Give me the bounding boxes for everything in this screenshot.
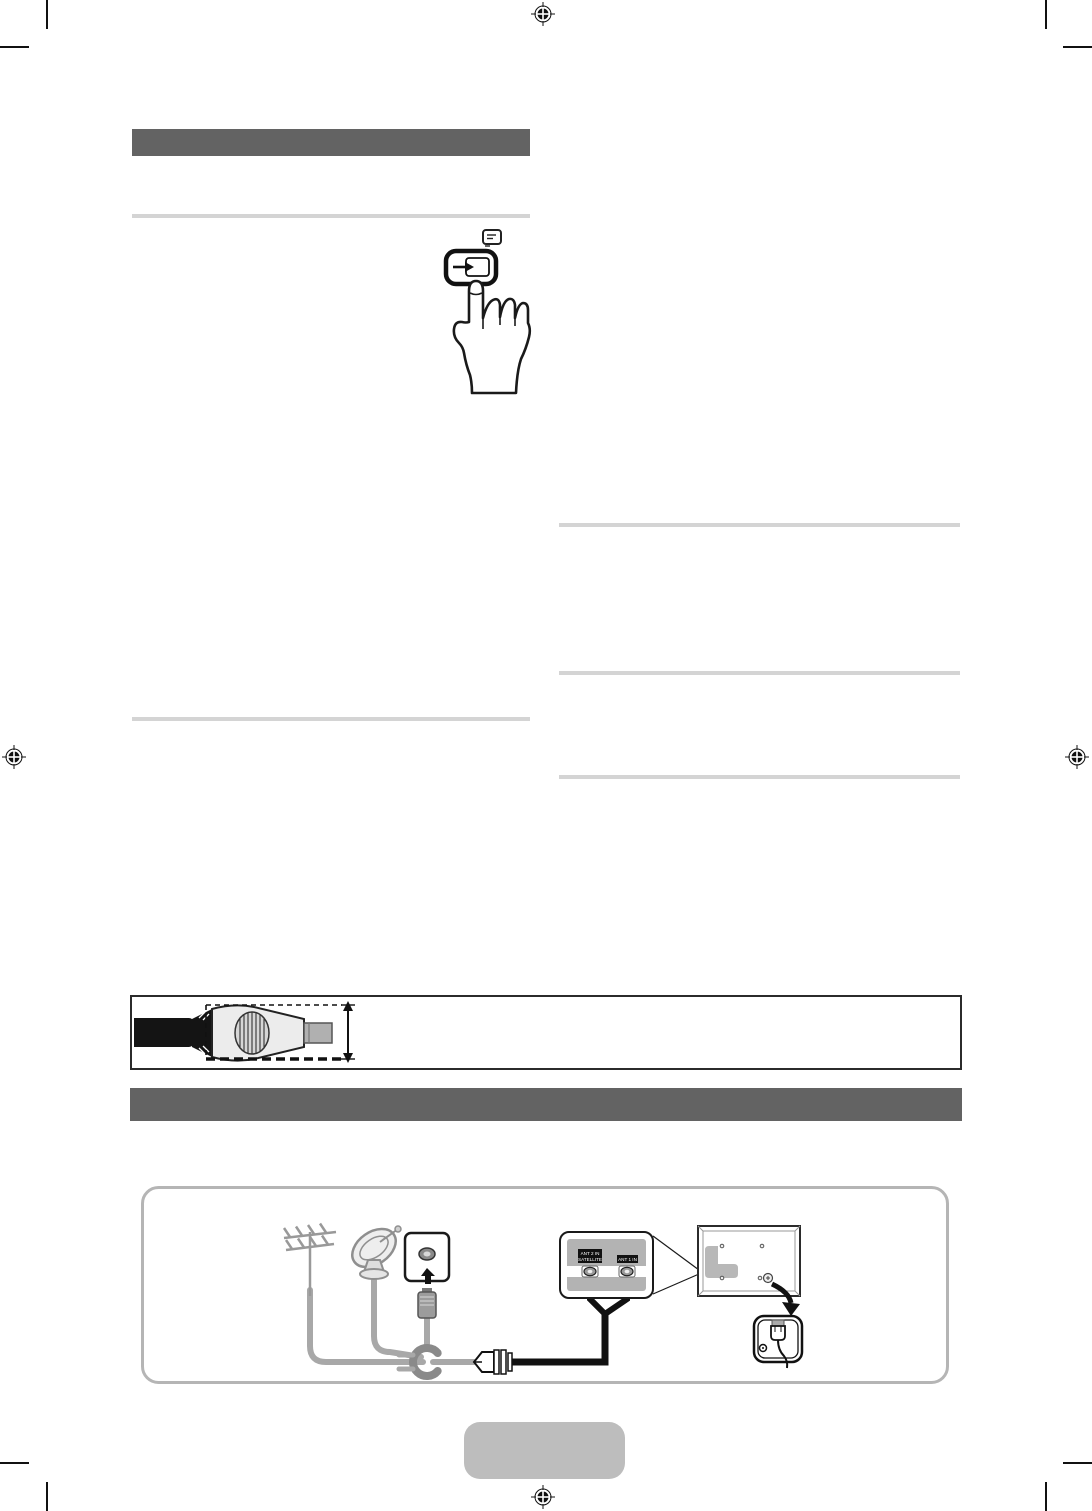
crop-mark: [1063, 46, 1092, 48]
divider-rule: [132, 214, 530, 218]
connection-diagram: ANT 2 IN SATELLITE ANT 1 IN: [141, 1186, 949, 1384]
crop-mark: [0, 1462, 29, 1464]
note-icon: [483, 230, 501, 246]
power-outlet-icon: [754, 1316, 802, 1368]
wall-outlet-icon: [405, 1233, 449, 1284]
pressing-hand-icon: [454, 281, 530, 393]
ant-port-panel: ANT 2 IN SATELLITE ANT 1 IN: [560, 1232, 653, 1298]
manual-page: ANT 2 IN SATELLITE ANT 1 IN: [0, 0, 1092, 1511]
tv-rear-icon: [698, 1226, 800, 1296]
crop-mark: [46, 0, 48, 29]
crop-mark: [46, 1482, 48, 1511]
divider-rule: [559, 671, 960, 675]
footer-language-tab: [464, 1422, 625, 1479]
divider-rule: [559, 775, 960, 779]
ant2-label-line1: ANT 2 IN: [581, 1251, 600, 1256]
divider-rule: [559, 523, 960, 527]
pressing-hand-illustration: [443, 225, 538, 395]
coax-connector-icon: [474, 1350, 512, 1374]
crop-mark: [1045, 0, 1047, 29]
section-header-bar-wide: [130, 1088, 962, 1121]
crop-mark: [1045, 1482, 1047, 1511]
registration-mark: [1065, 745, 1089, 769]
registration-mark: [2, 745, 26, 769]
enter-button-icon: [446, 251, 496, 284]
connector-cable-icon: [134, 997, 394, 1068]
crop-mark: [1063, 1462, 1092, 1464]
section-header-bar: [132, 129, 530, 156]
ant1-label-line1: ANT 1 IN: [618, 1257, 637, 1262]
connector-note-box: [130, 995, 962, 1070]
crop-mark: [0, 46, 29, 48]
height-arrow-icon: [341, 1001, 355, 1063]
ant2-label-line2: SATELLITE: [578, 1257, 602, 1262]
registration-mark: [531, 2, 555, 26]
coax-plug-icon: [418, 1288, 436, 1318]
registration-mark: [531, 1485, 555, 1509]
divider-rule: [132, 717, 530, 721]
